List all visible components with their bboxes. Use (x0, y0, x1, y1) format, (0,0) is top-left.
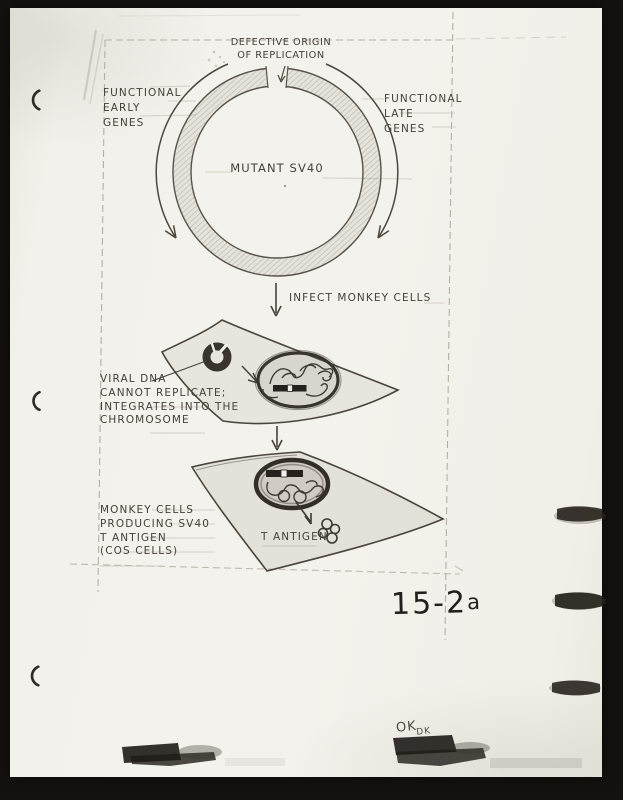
infect-step-label: INFECT MONKEY CELLS (289, 291, 431, 305)
integrated-viral-dna-bar-1 (273, 385, 307, 392)
late-genes-line2: LATE (384, 107, 463, 122)
hole-punch-marks (32, 90, 53, 686)
figure-number-suffix: a (467, 590, 482, 614)
late-genes-line1: FUNCTIONAL (384, 92, 463, 107)
cell2-caption-line4: (COS CELLS) (100, 545, 210, 559)
bottom-smudges (122, 735, 582, 768)
cell2-caption: MONKEY CELLS PRODUCING SV40 T ANTIGEN (C… (100, 504, 210, 559)
late-genes-label: FUNCTIONAL LATE GENES (384, 92, 463, 137)
step2-arrow (272, 426, 282, 450)
diagram-artwork (0, 0, 623, 800)
late-genes-line3: GENES (384, 122, 463, 137)
infect-arrow (271, 283, 281, 316)
early-genes-line3: GENES (103, 116, 182, 131)
cell1-caption-line2: CANNOT REPLICATE; (100, 387, 239, 401)
cell2-caption-line3: T ANTIGEN (100, 532, 210, 546)
cell1-caption-line4: CHROMOSOME (100, 414, 239, 428)
t-antigen-label: T ANTIGEN (261, 530, 328, 544)
origin-label-line1: DEFECTIVE ORIGIN (225, 36, 337, 49)
nucleus-2 (256, 460, 328, 508)
figure-number-main: 15-2 (391, 585, 468, 622)
approval-initials: DK (416, 726, 432, 737)
cell-2 (192, 452, 443, 571)
cell2-caption-line1: MONKEY CELLS (100, 504, 210, 518)
early-genes-label: FUNCTIONAL EARLY GENES (103, 86, 182, 131)
scanned-page-photo: DEFECTIVE ORIGIN OF REPLICATION FUNCTION… (0, 0, 623, 800)
nucleus-1 (255, 351, 341, 410)
plasmid-name-label: MUTANT SV40 (222, 161, 332, 175)
approval-ok: OK (395, 719, 417, 736)
origin-label-line2: OF REPLICATION (225, 49, 337, 62)
cell1-caption-line1: VIRAL DNA (100, 373, 239, 387)
figure-number: 15-2a (391, 585, 483, 622)
right-edge-smudges (549, 506, 606, 695)
early-genes-line2: EARLY (103, 101, 182, 116)
early-genes-line1: FUNCTIONAL (103, 86, 182, 101)
approval-mark: OKDK (395, 717, 432, 736)
cell1-caption: VIRAL DNA CANNOT REPLICATE; INTEGRATES I… (100, 373, 239, 428)
origin-label: DEFECTIVE ORIGIN OF REPLICATION (225, 36, 337, 62)
cell1-caption-line3: INTEGRATES INTO THE (100, 401, 239, 415)
cell2-caption-line2: PRODUCING SV40 (100, 518, 210, 532)
integrated-viral-dna-bar-2 (266, 470, 303, 477)
